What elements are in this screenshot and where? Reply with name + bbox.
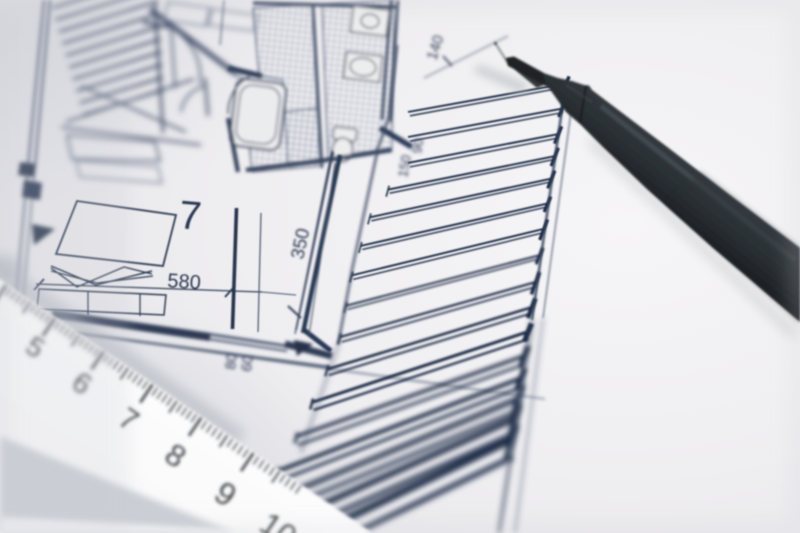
svg-text:580: 580 (167, 270, 202, 294)
svg-text:7: 7 (177, 193, 203, 239)
svg-text:90: 90 (409, 137, 426, 154)
svg-text:80: 80 (223, 353, 241, 371)
svg-text:60: 60 (239, 355, 257, 373)
